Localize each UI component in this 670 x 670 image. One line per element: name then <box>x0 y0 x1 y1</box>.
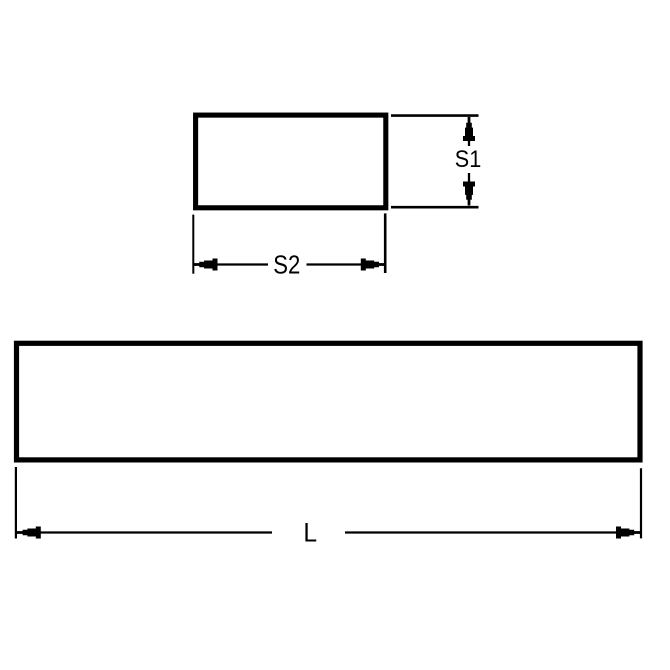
svg-text:S1: S1 <box>455 145 481 172</box>
svg-text:S2: S2 <box>273 251 300 280</box>
svg-text:L: L <box>303 519 317 548</box>
